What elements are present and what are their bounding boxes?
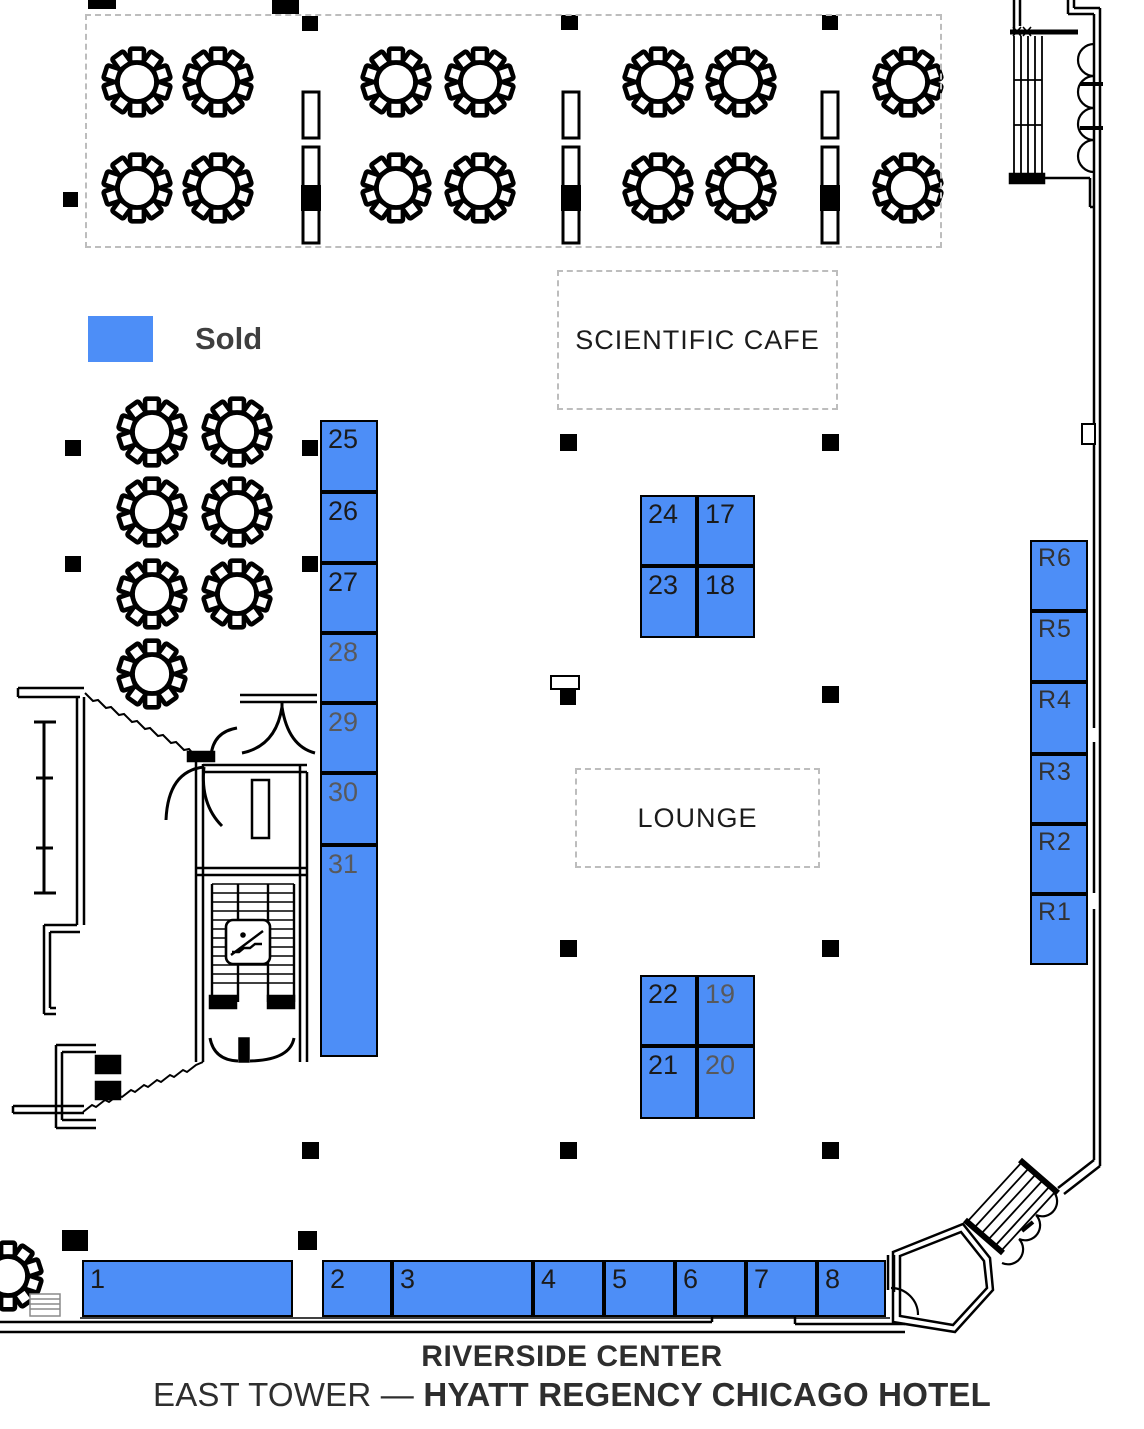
footer-titles: RIVERSIDE CENTER EAST TOWER — HYATT REGE… xyxy=(0,1340,1144,1414)
booth-R4[interactable]: R4 xyxy=(1030,682,1088,754)
booth-7-label: 7 xyxy=(754,1264,769,1295)
booth-R1[interactable]: R1 xyxy=(1030,894,1088,965)
booth-26-label: 26 xyxy=(328,496,358,527)
booth-31-label: 31 xyxy=(328,849,358,880)
round-table-icon xyxy=(118,641,186,708)
top-right-entrance xyxy=(1010,0,1103,207)
booth-18[interactable]: 18 xyxy=(697,566,755,638)
exhibit-hall-floorplan: SCIENTIFIC CAFE LOUNGE Sold 25 26 27 28 … xyxy=(0,0,1144,1429)
booth-R1-label: R1 xyxy=(1038,898,1072,927)
booth-26[interactable]: 26 xyxy=(320,492,378,563)
venue-title: RIVERSIDE CENTER xyxy=(0,1340,1144,1374)
hotel-title: EAST TOWER — HYATT REGENCY CHICAGO HOTEL xyxy=(0,1376,1144,1414)
booth-23[interactable]: 23 xyxy=(640,566,697,638)
booth-20[interactable]: 20 xyxy=(697,1046,755,1119)
tower-name: EAST TOWER xyxy=(153,1376,371,1413)
booth-3-label: 3 xyxy=(400,1264,415,1295)
booth-23-label: 23 xyxy=(648,570,678,601)
booth-3[interactable]: 3 xyxy=(392,1260,533,1317)
banquet-tables-left xyxy=(0,399,271,1310)
booth-2-label: 2 xyxy=(330,1264,345,1295)
booth-31[interactable]: 31 xyxy=(320,845,378,1057)
scientific-cafe-label: SCIENTIFIC CAFE xyxy=(559,272,836,408)
booth-20-label: 20 xyxy=(705,1050,735,1081)
booth-1[interactable]: 1 xyxy=(82,1260,293,1317)
round-table-icon xyxy=(118,561,186,628)
booth-29[interactable]: 29 xyxy=(320,703,378,773)
booth-4[interactable]: 4 xyxy=(533,1260,604,1317)
booth-21-label: 21 xyxy=(648,1050,678,1081)
booth-22[interactable]: 22 xyxy=(640,975,697,1046)
title-separator: — xyxy=(381,1376,414,1413)
booth-5-label: 5 xyxy=(612,1264,627,1295)
booth-8-label: 8 xyxy=(825,1264,840,1295)
booth-R6[interactable]: R6 xyxy=(1030,540,1088,611)
floor-podium xyxy=(551,676,579,689)
scientific-cafe-area: SCIENTIFIC CAFE xyxy=(557,270,838,410)
escalator-icon xyxy=(226,920,270,964)
booth-7[interactable]: 7 xyxy=(746,1260,817,1317)
round-table-icon xyxy=(203,479,271,546)
stacked-chairs-icon xyxy=(30,1294,60,1316)
legend: Sold xyxy=(88,316,262,362)
booth-R5-label: R5 xyxy=(1038,615,1072,644)
bottom-wall xyxy=(0,1316,905,1332)
booth-R6-label: R6 xyxy=(1038,544,1072,573)
partition-track xyxy=(34,722,56,893)
booth-29-label: 29 xyxy=(328,707,358,738)
booth-R4-label: R4 xyxy=(1038,686,1072,715)
entrance-stairs xyxy=(967,1162,1056,1251)
booth-28-label: 28 xyxy=(328,637,358,668)
booth-27-label: 27 xyxy=(328,567,358,598)
round-table-icon xyxy=(118,399,186,466)
hotel-name: HYATT REGENCY CHICAGO HOTEL xyxy=(423,1376,991,1413)
booth-19-label: 19 xyxy=(705,979,735,1010)
sold-legend-label: Sold xyxy=(195,321,262,357)
booth-5[interactable]: 5 xyxy=(604,1260,675,1317)
left-stair-structure xyxy=(13,688,317,1128)
booth-27[interactable]: 27 xyxy=(320,563,378,633)
booth-30[interactable]: 30 xyxy=(320,773,378,845)
booth-25[interactable]: 25 xyxy=(320,420,378,492)
bottom-right-entrance xyxy=(888,1160,1100,1332)
round-table-icon xyxy=(203,561,271,628)
sold-color-swatch xyxy=(88,316,153,362)
booth-17[interactable]: 17 xyxy=(697,495,755,566)
booth-6[interactable]: 6 xyxy=(675,1260,746,1317)
booth-21[interactable]: 21 xyxy=(640,1046,697,1119)
booth-25-label: 25 xyxy=(328,424,358,455)
booth-R5[interactable]: R5 xyxy=(1030,611,1088,682)
lounge-label: LOUNGE xyxy=(577,770,818,866)
booth-6-label: 6 xyxy=(683,1264,698,1295)
booth-28[interactable]: 28 xyxy=(320,633,378,703)
booth-24-label: 24 xyxy=(648,499,678,530)
booth-R3-label: R3 xyxy=(1038,758,1072,787)
booth-R2-label: R2 xyxy=(1038,828,1072,857)
booth-2[interactable]: 2 xyxy=(322,1260,392,1317)
round-table-icon xyxy=(118,479,186,546)
banquet-area-outline xyxy=(85,14,942,248)
booth-R3[interactable]: R3 xyxy=(1030,754,1088,824)
booth-18-label: 18 xyxy=(705,570,735,601)
booth-24[interactable]: 24 xyxy=(640,495,697,566)
booth-19[interactable]: 19 xyxy=(697,975,755,1046)
booth-4-label: 4 xyxy=(541,1264,556,1295)
booth-22-label: 22 xyxy=(648,979,678,1010)
booth-R2[interactable]: R2 xyxy=(1030,824,1088,894)
booth-8[interactable]: 8 xyxy=(817,1260,886,1317)
booth-30-label: 30 xyxy=(328,777,358,808)
round-table-icon xyxy=(203,399,271,466)
lounge-area: LOUNGE xyxy=(575,768,820,868)
booth-17-label: 17 xyxy=(705,499,735,530)
booth-1-label: 1 xyxy=(90,1264,105,1295)
